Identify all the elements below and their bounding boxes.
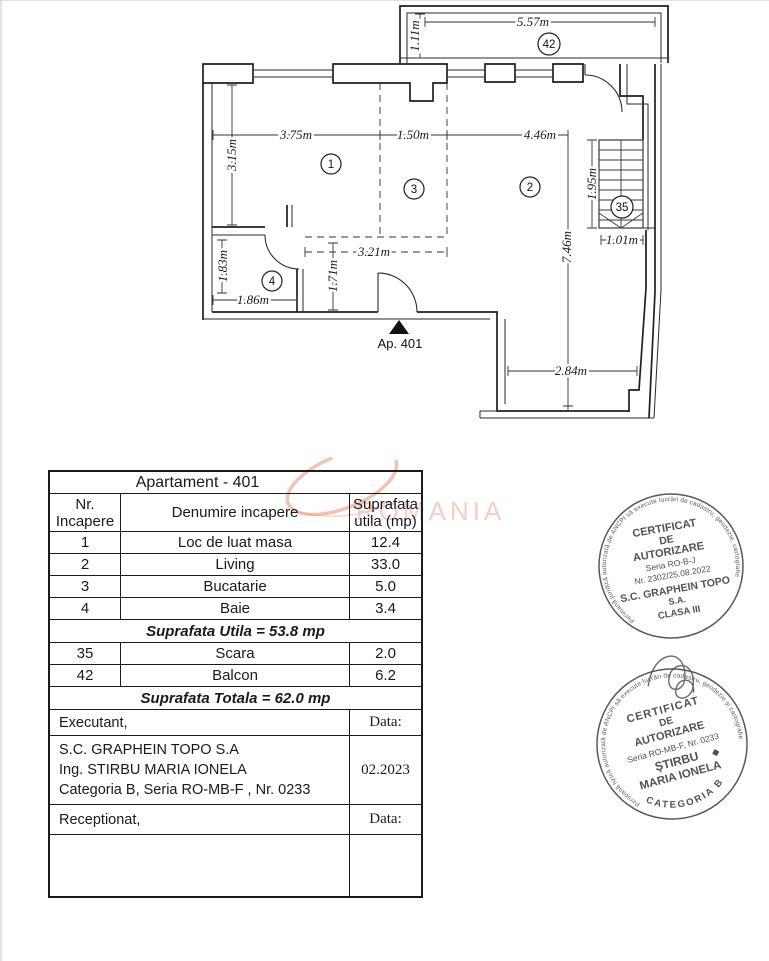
stamp2-seria: Seria RO-MB-F, Nr. 0233	[626, 731, 720, 765]
receptionat-row: Receptionat, Data:	[50, 805, 421, 835]
dim-stair-height: 1.95m	[584, 168, 599, 200]
walls-thick	[203, 6, 668, 418]
cell-nr: 4	[50, 598, 120, 619]
header-denumire: Denumire incapere	[120, 494, 349, 531]
svg-text:Persoană fizică autorizată de: Persoană fizică autorizată de ANCPI să e…	[584, 656, 755, 813]
header-nr-incapere: Nr.Incapere	[50, 494, 120, 531]
dim-hall-width: 3.21m	[357, 244, 390, 259]
area-table: Apartament - 401 Nr.Incapere Denumire in…	[48, 470, 423, 898]
dim-room2-width: 4.46m	[524, 127, 556, 142]
cell-nr: 2	[50, 554, 120, 575]
subtotal-row: Suprafata Utila = 53.8 mp	[50, 620, 421, 643]
executant-company: S.C. GRAPHEIN TOPO S.A	[59, 740, 239, 760]
signature-empty-row	[50, 835, 421, 896]
dim-balcony-width: 5.57m	[517, 14, 549, 29]
cell-area: 2.0	[349, 643, 421, 664]
stamp1-company: S.C. GRAPHEIN TOPO	[619, 574, 731, 605]
cell-area: 5.0	[349, 576, 421, 597]
data-label-2: Data:	[349, 805, 421, 834]
svg-text:Persoană juridică autorizată d: Persoană juridică autorizată de ANCPI să…	[590, 485, 749, 628]
bathroom-door-arc	[265, 235, 299, 269]
dim-room1-height: 3.15m	[224, 139, 239, 172]
dim-bath-height: 1.83m	[215, 250, 230, 282]
entrance-door-arc	[378, 273, 417, 312]
stamp-graphein-topo: Persoană juridică autorizată de ANCPI să…	[588, 483, 755, 650]
stamp1-nr: Nr. 2302/25.08.2022	[634, 563, 712, 586]
apartment-entrance-label: Ap. 401	[378, 336, 423, 351]
svg-text:CATEGORIA B: CATEGORIA B	[642, 774, 730, 819]
dim-room3-width: 1.50m	[397, 127, 429, 142]
cell-name: Balcon	[120, 665, 349, 686]
data-label: Data:	[349, 710, 421, 735]
dim-room2-height: 7.46m	[559, 231, 574, 263]
signature-area	[50, 835, 349, 896]
stamp2-stirbu: ŞTIRBU	[653, 749, 700, 774]
walls-thin	[203, 13, 668, 418]
total-text: Suprafata Totala = 62.0 mp	[50, 687, 421, 709]
table-title: Apartament - 401	[50, 472, 421, 493]
stamp1-ring-text: Persoană juridică autorizată de ANCPI să…	[590, 485, 749, 628]
dim-extension-width: 2.84m	[555, 363, 587, 378]
cell-nr: 3	[50, 576, 120, 597]
cell-name: Baie	[120, 598, 349, 619]
dim-balcony-depth: 1.11m	[407, 20, 422, 51]
cell-nr: 42	[50, 665, 120, 686]
cell-nr: 35	[50, 643, 120, 664]
cell-name: Scara	[120, 643, 349, 664]
table-title-row: Apartament - 401	[50, 472, 421, 494]
stamp1-sa: S.A.	[668, 594, 687, 607]
signature-date-area	[349, 835, 421, 896]
stamp1-seria: Seria RO-B-J	[645, 555, 697, 574]
entrance-marker: Ap. 401	[378, 320, 423, 351]
cell-area: 3.4	[349, 598, 421, 619]
room-circle-35: 35	[616, 202, 629, 214]
stair-door-arc	[585, 64, 622, 112]
entrance-triangle-icon	[389, 320, 409, 334]
stamp1-border-circle	[588, 483, 755, 650]
stamp2-border-circle	[580, 652, 764, 836]
executant-authorization: Categoria B, Seria RO-MB-F , Nr. 0233	[59, 780, 310, 800]
table-header-row: Nr.Incapere Denumire incapere Suprafatau…	[50, 494, 421, 532]
stamp2-ring-text: Persoană fizică autorizată de ANCPI să e…	[584, 656, 755, 813]
cell-nr: 1	[50, 532, 120, 553]
total-row: Suprafata Totala = 62.0 mp	[50, 687, 421, 710]
stamp-stirbu-maria: Persoană fizică autorizată de ANCPI să e…	[577, 642, 763, 836]
executant-label: Executant,	[50, 710, 349, 735]
cell-area: 12.4	[349, 532, 421, 553]
executant-engineer: Ing. STIRBU MARIA IONELA	[59, 760, 247, 780]
stamp1-certificat: CERTIFICAT	[632, 517, 698, 540]
window-lines	[253, 70, 553, 77]
cell-name: Bucatarie	[120, 576, 349, 597]
dim-bath-width: 1.86m	[237, 292, 269, 307]
dim-hall-height: 1.71m	[325, 260, 340, 292]
executant-details: S.C. GRAPHEIN TOPO S.A Ing. STIRBU MARIA…	[50, 736, 349, 804]
stamp2-maria-ionela: MARIA IONELA	[638, 759, 722, 792]
executant-details-row: S.C. GRAPHEIN TOPO S.A Ing. STIRBU MARIA…	[50, 736, 421, 805]
table-row: 3 Bucatarie 5.0	[50, 576, 421, 598]
stamp2-autorizare: AUTORIZARE	[633, 719, 706, 749]
cell-area: 33.0	[349, 554, 421, 575]
stamp2-certificat: CERTIFICAT	[625, 695, 700, 726]
dimension-lines	[213, 14, 655, 411]
table-row: 35 Scara 2.0	[50, 643, 421, 665]
floor-plan: 5.57m 1.11m 3.75m 1.50m 4.46m 3.15m 1.95…	[0, 0, 769, 460]
receptionat-label: Receptionat,	[50, 805, 349, 834]
stamp1-autorizare: AUTORIZARE	[632, 540, 705, 564]
stamp2-de: DE	[658, 715, 675, 729]
executant-row: Executant, Data:	[50, 710, 421, 736]
cell-name: Loc de luat masa	[120, 532, 349, 553]
cell-name: Living	[120, 554, 349, 575]
subtotal-text: Suprafata Utila = 53.8 mp	[50, 620, 421, 642]
room-circle-2: 2	[527, 182, 533, 194]
cell-area: 6.2	[349, 665, 421, 686]
room-circle-1: 1	[328, 159, 334, 171]
room-circle-42: 42	[543, 39, 556, 51]
table-row: 4 Baie 3.4	[50, 598, 421, 620]
data-value: 02.2023	[349, 736, 421, 804]
stamp1-de: DE	[658, 533, 674, 547]
dim-room1-width: 3.75m	[279, 127, 312, 142]
table-row: 1 Loc de luat masa 12.4	[50, 532, 421, 554]
scanned-document-page: ROMANIA	[0, 0, 769, 961]
room-circle-4: 4	[269, 276, 276, 288]
signature-scribble	[642, 652, 697, 706]
dim-stair-width: 1.01m	[606, 232, 638, 247]
stamp1-clasa: CLASA III	[657, 604, 701, 622]
stamp2-categoria: CATEGORIA B	[642, 774, 730, 819]
room-circle-3: 3	[411, 184, 417, 196]
dimension-labels: 5.57m 1.11m 3.75m 1.50m 4.46m 3.15m 1.95…	[215, 14, 638, 378]
header-suprafata: Suprafatautila (mp)	[349, 494, 421, 531]
table-row: 42 Balcon 6.2	[50, 665, 421, 687]
stamp2-diamond-mark: ◆	[710, 746, 721, 758]
table-row: 2 Living 33.0	[50, 554, 421, 576]
